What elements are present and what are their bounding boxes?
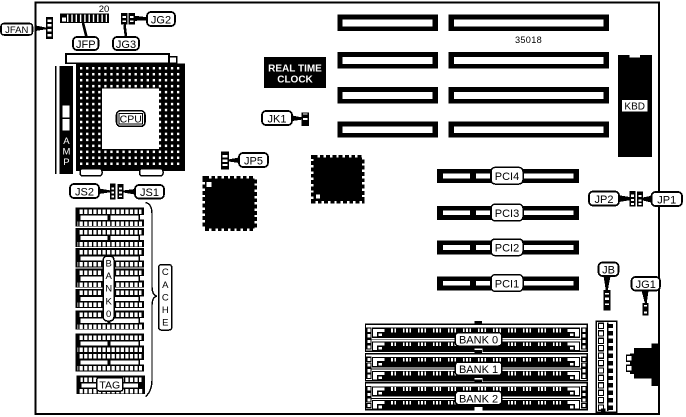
svg-text:KBD: KBD: [624, 101, 645, 112]
svg-text:PCI2: PCI2: [495, 243, 519, 255]
svg-text:JB: JB: [602, 265, 615, 277]
svg-text:JS2: JS2: [75, 186, 94, 198]
svg-text:PCI1: PCI1: [495, 278, 519, 290]
svg-text:CLOCK: CLOCK: [277, 75, 313, 86]
svg-text:JS1: JS1: [140, 187, 159, 199]
svg-text:B: B: [106, 259, 112, 270]
svg-text:JFP: JFP: [76, 39, 96, 51]
svg-text:CPU: CPU: [120, 113, 142, 125]
svg-text:35018: 35018: [515, 35, 542, 45]
svg-text:BANK 2: BANK 2: [459, 393, 498, 405]
svg-text:JG1: JG1: [636, 279, 656, 291]
svg-text:TAG: TAG: [99, 379, 120, 391]
svg-text:BANK 0: BANK 0: [459, 335, 498, 347]
svg-text:A: A: [63, 136, 70, 147]
svg-text:JP5: JP5: [244, 155, 263, 167]
svg-text:JP2: JP2: [595, 194, 614, 206]
svg-text:C: C: [162, 292, 169, 303]
svg-text:JP1: JP1: [657, 194, 676, 206]
svg-text:E: E: [162, 318, 168, 329]
svg-text:JG2: JG2: [151, 14, 171, 26]
svg-text:P: P: [63, 157, 69, 168]
svg-text:C: C: [162, 267, 169, 278]
svg-text:N: N: [105, 284, 112, 295]
svg-text:JFAN: JFAN: [5, 25, 28, 36]
svg-text:BANK 1: BANK 1: [459, 364, 498, 376]
svg-text:20: 20: [99, 4, 110, 15]
svg-text:K: K: [106, 296, 113, 307]
svg-text:JK1: JK1: [268, 113, 287, 125]
svg-text:0: 0: [106, 309, 111, 320]
svg-text:PCI3: PCI3: [495, 208, 519, 220]
svg-text:M: M: [62, 147, 70, 158]
svg-text:JG3: JG3: [116, 39, 136, 51]
svg-text:A: A: [106, 271, 113, 282]
svg-text:PCI4: PCI4: [495, 171, 519, 183]
svg-text:A: A: [162, 280, 169, 291]
svg-text:H: H: [162, 305, 169, 316]
svg-text:REAL TIME: REAL TIME: [268, 64, 322, 75]
